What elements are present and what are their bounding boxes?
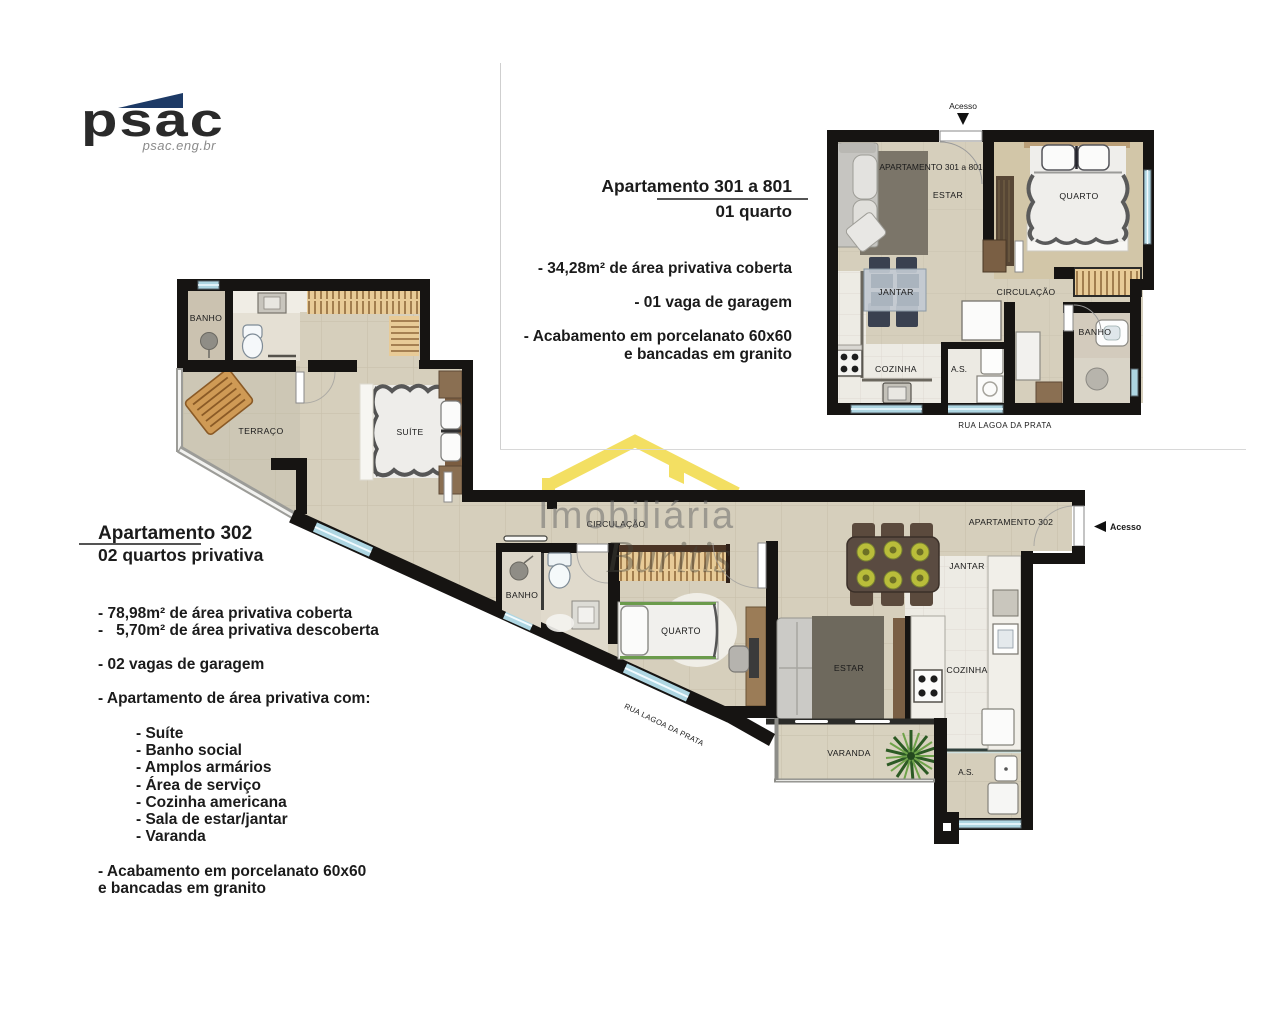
- svg-text:- 78,98m² de área privativa co: - 78,98m² de área privativa coberta: [98, 605, 353, 622]
- svg-text:- Amplos armários: - Amplos armários: [136, 759, 272, 776]
- svg-text:Apartamento 302: Apartamento 302: [98, 523, 252, 544]
- svg-text:- Acabamento em porcelanato 60: - Acabamento em porcelanato 60x60: [524, 328, 792, 345]
- svg-text:01 quarto: 01 quarto: [715, 202, 792, 221]
- svg-text:COZINHA: COZINHA: [875, 364, 917, 374]
- svg-text:psac.eng.br: psac.eng.br: [142, 138, 217, 153]
- svg-text:RUA LAGOA DA PRATA: RUA LAGOA DA PRATA: [958, 421, 1052, 430]
- svg-text:Acesso: Acesso: [949, 101, 977, 111]
- svg-text:VARANDA: VARANDA: [827, 748, 870, 758]
- svg-text:A.S.: A.S.: [951, 364, 967, 374]
- svg-text:BANHO: BANHO: [190, 313, 222, 323]
- svg-text:Apartamento 301 a 801: Apartamento 301 a 801: [601, 176, 792, 196]
- svg-text:TERRAÇO: TERRAÇO: [238, 426, 283, 436]
- svg-text:CIRCULAÇÃO: CIRCULAÇÃO: [997, 287, 1056, 297]
- svg-text:JANTAR: JANTAR: [949, 561, 985, 571]
- svg-text:QUARTO: QUARTO: [661, 626, 701, 636]
- svg-text:ESTAR: ESTAR: [834, 663, 864, 673]
- svg-text:JANTAR: JANTAR: [878, 287, 914, 297]
- svg-text:BANHO: BANHO: [1079, 327, 1112, 337]
- svg-text:- Suíte: - Suíte: [136, 725, 184, 742]
- svg-text:RUA LAGOA DA PRATA: RUA LAGOA DA PRATA: [623, 702, 706, 749]
- svg-text:A.S.: A.S.: [958, 767, 974, 777]
- svg-text:e bancadas em granito: e bancadas em granito: [98, 880, 266, 897]
- svg-text:QUARTO: QUARTO: [1059, 191, 1098, 201]
- svg-text:- Acabamento em porcelanato 60: - Acabamento em porcelanato 60x60: [98, 863, 366, 880]
- svg-text:APARTAMENTO 302: APARTAMENTO 302: [969, 517, 1053, 527]
- svg-text:ESTAR: ESTAR: [933, 190, 963, 200]
- svg-text:- Área de serviço: - Área de serviço: [136, 777, 261, 794]
- svg-text:Buritis: Buritis: [606, 531, 731, 582]
- svg-text:- 02 vagas de garagem: - 02 vagas de garagem: [98, 656, 264, 673]
- svg-text:- Sala de estar/jantar: - Sala de estar/jantar: [136, 811, 288, 828]
- svg-text:- Cozinha americana: - Cozinha americana: [136, 794, 287, 811]
- svg-text:- 34,28m² de área privativa co: - 34,28m² de área privativa coberta: [538, 260, 793, 277]
- svg-text:BANHO: BANHO: [506, 590, 538, 600]
- svg-text:e bancadas em granito: e bancadas em granito: [624, 346, 792, 363]
- svg-text:COZINHA: COZINHA: [946, 665, 987, 675]
- svg-text:02 quartos privativa: 02 quartos privativa: [98, 545, 264, 565]
- svg-text:- 5,70m² de área privativa d: - 5,70m² de área privativa descoberta: [98, 622, 379, 639]
- svg-text:Acesso: Acesso: [1110, 522, 1142, 532]
- svg-text:- Apartamento de área privativ: - Apartamento de área privativa com:: [98, 690, 370, 707]
- svg-text:APARTAMENTO 301 a 801: APARTAMENTO 301 a 801: [879, 162, 983, 172]
- svg-text:SUÍTE: SUÍTE: [396, 427, 423, 437]
- svg-text:- Varanda: - Varanda: [136, 828, 206, 845]
- svg-text:- Banho social: - Banho social: [136, 742, 242, 759]
- svg-text:- 01 vaga de garagem: - 01 vaga de garagem: [634, 294, 792, 311]
